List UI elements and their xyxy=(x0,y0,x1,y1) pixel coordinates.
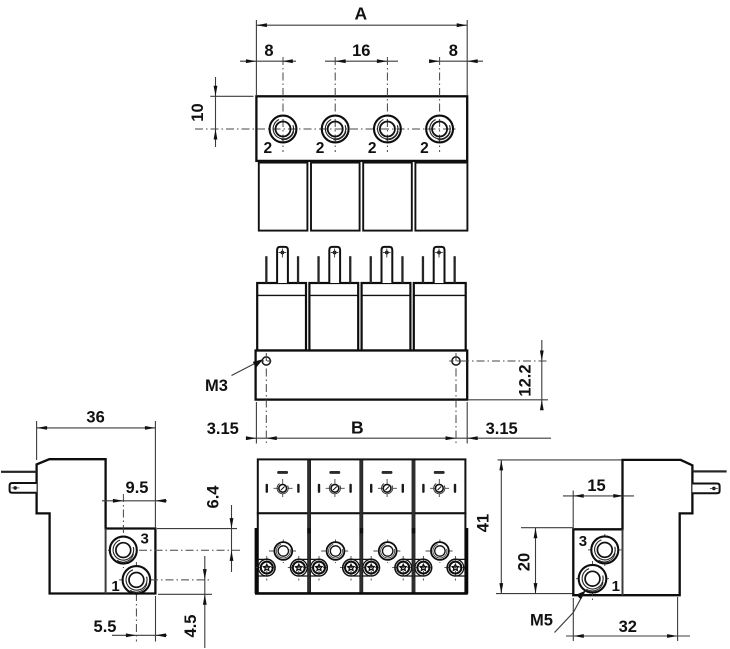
svg-text:1: 1 xyxy=(612,578,620,595)
svg-text:12.2: 12.2 xyxy=(517,364,535,396)
svg-text:8: 8 xyxy=(264,42,273,60)
svg-text:5.5: 5.5 xyxy=(94,618,117,636)
svg-text:9.5: 9.5 xyxy=(126,479,149,497)
svg-text:20: 20 xyxy=(516,553,534,571)
svg-text:8: 8 xyxy=(449,42,458,60)
svg-text:A: A xyxy=(354,4,367,24)
svg-text:2: 2 xyxy=(368,140,377,157)
svg-text:M3: M3 xyxy=(205,377,228,395)
svg-text:15: 15 xyxy=(587,477,605,495)
svg-text:2: 2 xyxy=(420,140,429,157)
svg-text:3.15: 3.15 xyxy=(207,420,239,438)
svg-text:1: 1 xyxy=(111,578,119,595)
svg-text:3.15: 3.15 xyxy=(486,420,518,438)
svg-text:16: 16 xyxy=(352,42,370,60)
svg-text:10: 10 xyxy=(189,103,207,121)
svg-text:4.5: 4.5 xyxy=(182,615,200,638)
svg-text:M5: M5 xyxy=(530,612,553,630)
svg-text:36: 36 xyxy=(86,408,104,426)
svg-text:B: B xyxy=(351,418,364,438)
svg-text:41: 41 xyxy=(475,514,493,532)
svg-text:3: 3 xyxy=(579,533,587,550)
svg-text:2: 2 xyxy=(263,140,272,157)
svg-text:32: 32 xyxy=(619,618,637,636)
svg-text:3: 3 xyxy=(141,531,149,548)
svg-text:6.4: 6.4 xyxy=(205,485,223,509)
svg-text:2: 2 xyxy=(316,140,325,157)
